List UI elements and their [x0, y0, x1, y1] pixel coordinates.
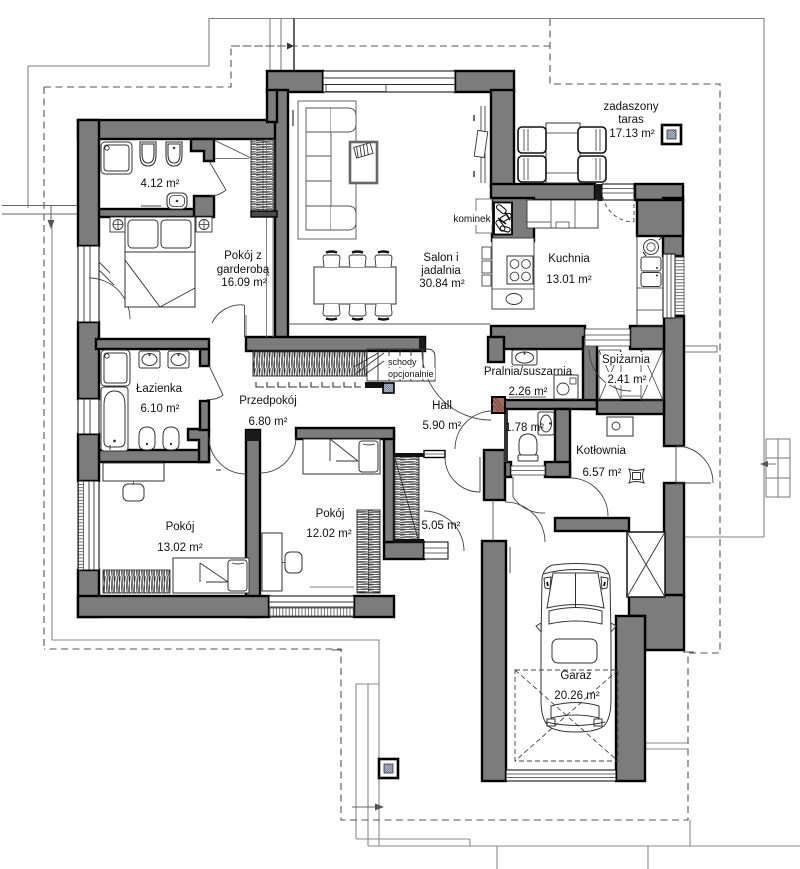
svg-text:30.84 m²: 30.84 m²: [419, 278, 465, 290]
svg-text:taras: taras: [618, 114, 644, 126]
svg-text:Pokój: Pokój: [166, 521, 195, 533]
svg-text:17.13 m²: 17.13 m²: [609, 128, 655, 140]
svg-text:2.26 m²: 2.26 m²: [509, 386, 548, 398]
svg-text:Kuchnia: Kuchnia: [548, 253, 590, 265]
svg-text:Łazienka: Łazienka: [136, 383, 183, 395]
svg-text:6.57 m²: 6.57 m²: [583, 467, 622, 479]
svg-text:kominek: kominek: [453, 214, 491, 225]
svg-text:Pokój: Pokój: [316, 508, 345, 520]
svg-text:schody: schody: [388, 357, 417, 367]
svg-text:zadaszony: zadaszony: [604, 101, 659, 113]
svg-text:Kotłownia: Kotłownia: [576, 445, 626, 457]
svg-text:jadalnia: jadalnia: [420, 265, 461, 277]
svg-text:4.12 m²: 4.12 m²: [141, 178, 180, 190]
svg-text:Pokój z: Pokój z: [224, 250, 262, 262]
svg-text:Salon i: Salon i: [423, 252, 458, 264]
svg-text:Spiżarnia: Spiżarnia: [602, 354, 651, 366]
svg-text:13.02 m²: 13.02 m²: [157, 542, 203, 554]
svg-text:garderobą: garderobą: [217, 264, 270, 276]
svg-text:Hall: Hall: [432, 400, 452, 412]
svg-text:Pralnia/suszarnia: Pralnia/suszarnia: [484, 366, 573, 378]
svg-text:6.80 m²: 6.80 m²: [249, 416, 288, 428]
svg-text:13.01 m²: 13.01 m²: [546, 274, 592, 286]
svg-text:Przedpokój: Przedpokój: [239, 395, 297, 407]
svg-text:6.10 m²: 6.10 m²: [141, 403, 180, 415]
svg-text:2.41 m²: 2.41 m²: [608, 374, 647, 386]
svg-text:20.26 m²: 20.26 m²: [554, 690, 600, 702]
svg-text:12.02 m²: 12.02 m²: [306, 528, 352, 540]
svg-text:16.09 m²: 16.09 m²: [221, 277, 267, 289]
svg-text:Garaż: Garaż: [560, 670, 592, 682]
svg-text:5.90 m²: 5.90 m²: [423, 420, 462, 432]
svg-text:1.78 m²: 1.78 m²: [505, 422, 544, 434]
svg-text:5.05 m²: 5.05 m²: [422, 520, 461, 532]
svg-text:opcjonalnie: opcjonalnie: [388, 369, 434, 379]
